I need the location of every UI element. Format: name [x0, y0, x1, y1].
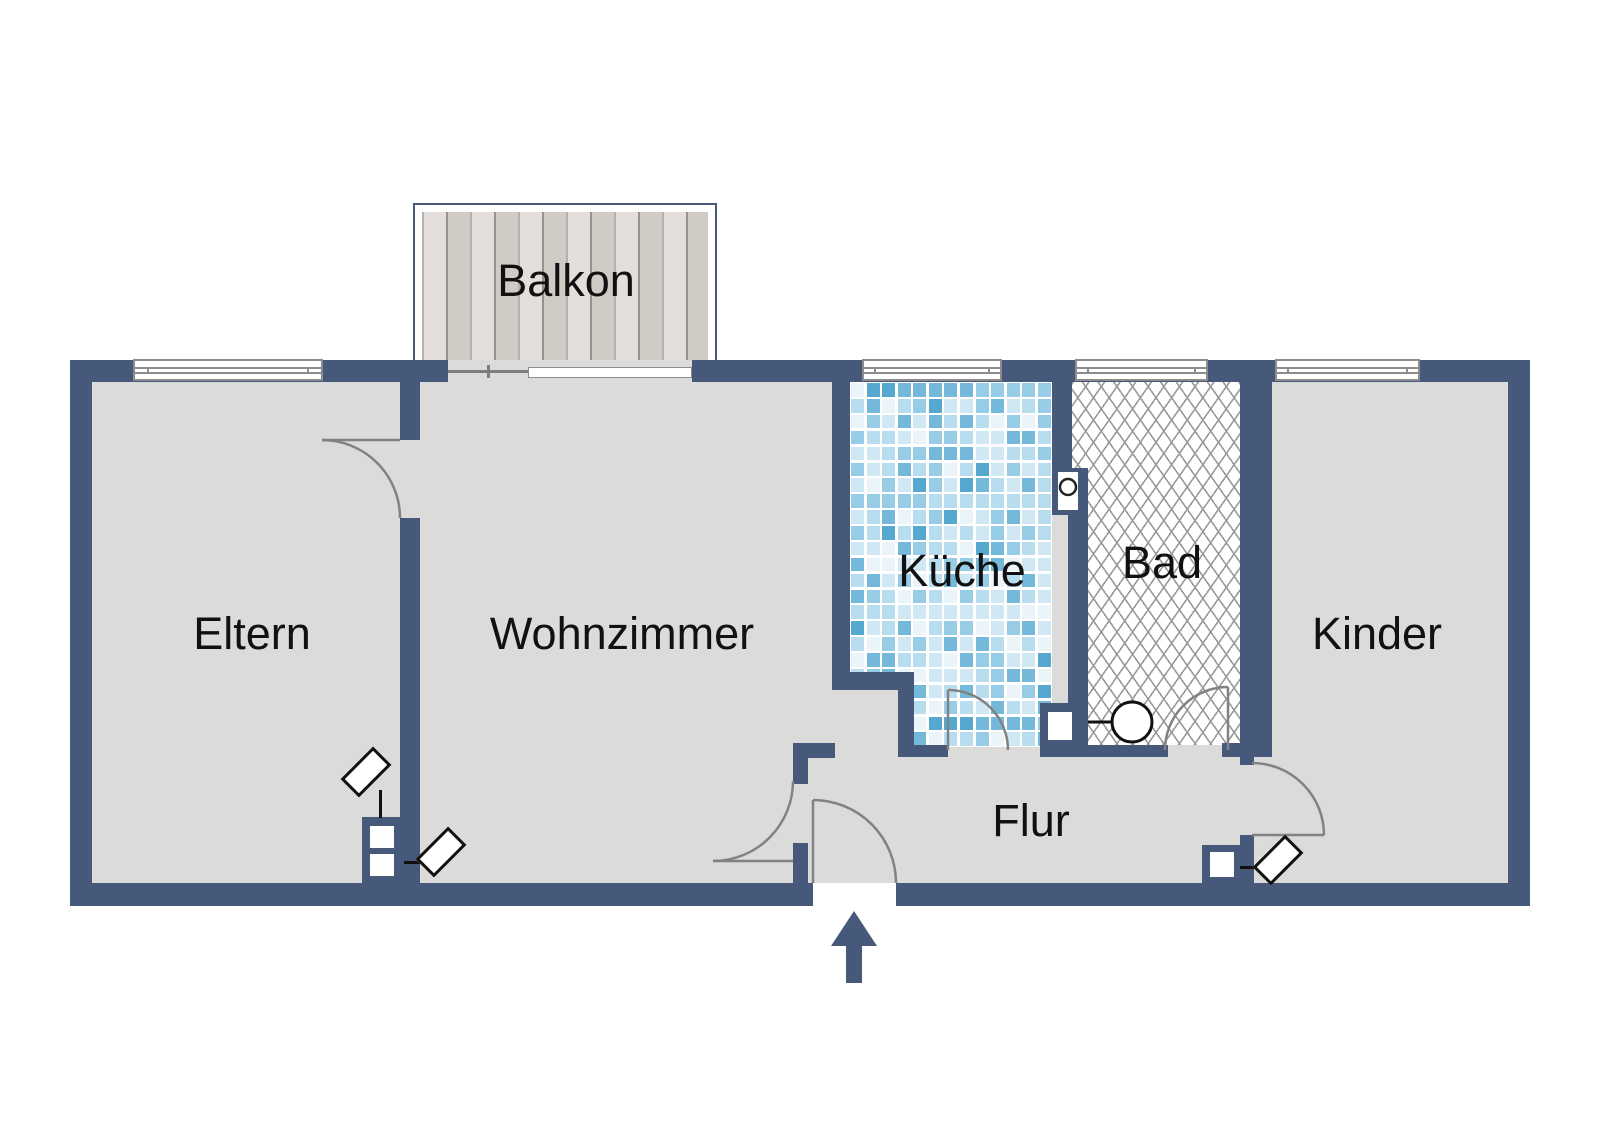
room-label-kinder: Kinder: [1312, 608, 1442, 660]
door-swing-arc-kueche: [948, 690, 1008, 750]
floor-plan: Balkon Eltern Wohnzimmer Küche Bad Kinde…: [0, 0, 1600, 1131]
room-label-wohnzimmer: Wohnzimmer: [490, 608, 754, 660]
entrance-arrow-icon: [831, 911, 877, 983]
door-swing-arc-entrance: [813, 800, 896, 883]
door-swing-arc-kinder: [1252, 763, 1324, 835]
pipe-shaft-icon: [1060, 479, 1076, 495]
washbasin-icon: [1112, 702, 1152, 742]
room-label-flur: Flur: [992, 795, 1070, 847]
door-swing-arc-eltern: [322, 440, 400, 518]
room-label-eltern: Eltern: [193, 608, 311, 660]
room-label-kueche: Küche: [898, 545, 1026, 597]
door-swing-arc-bad: [1165, 687, 1228, 750]
switch-connector: [379, 790, 382, 818]
room-label-balkon: Balkon: [497, 255, 635, 307]
doors-and-fixtures-overlay: [0, 0, 1600, 1131]
door-swing-arc-wohnzimmer: [713, 781, 793, 861]
room-label-bad: Bad: [1122, 537, 1202, 589]
